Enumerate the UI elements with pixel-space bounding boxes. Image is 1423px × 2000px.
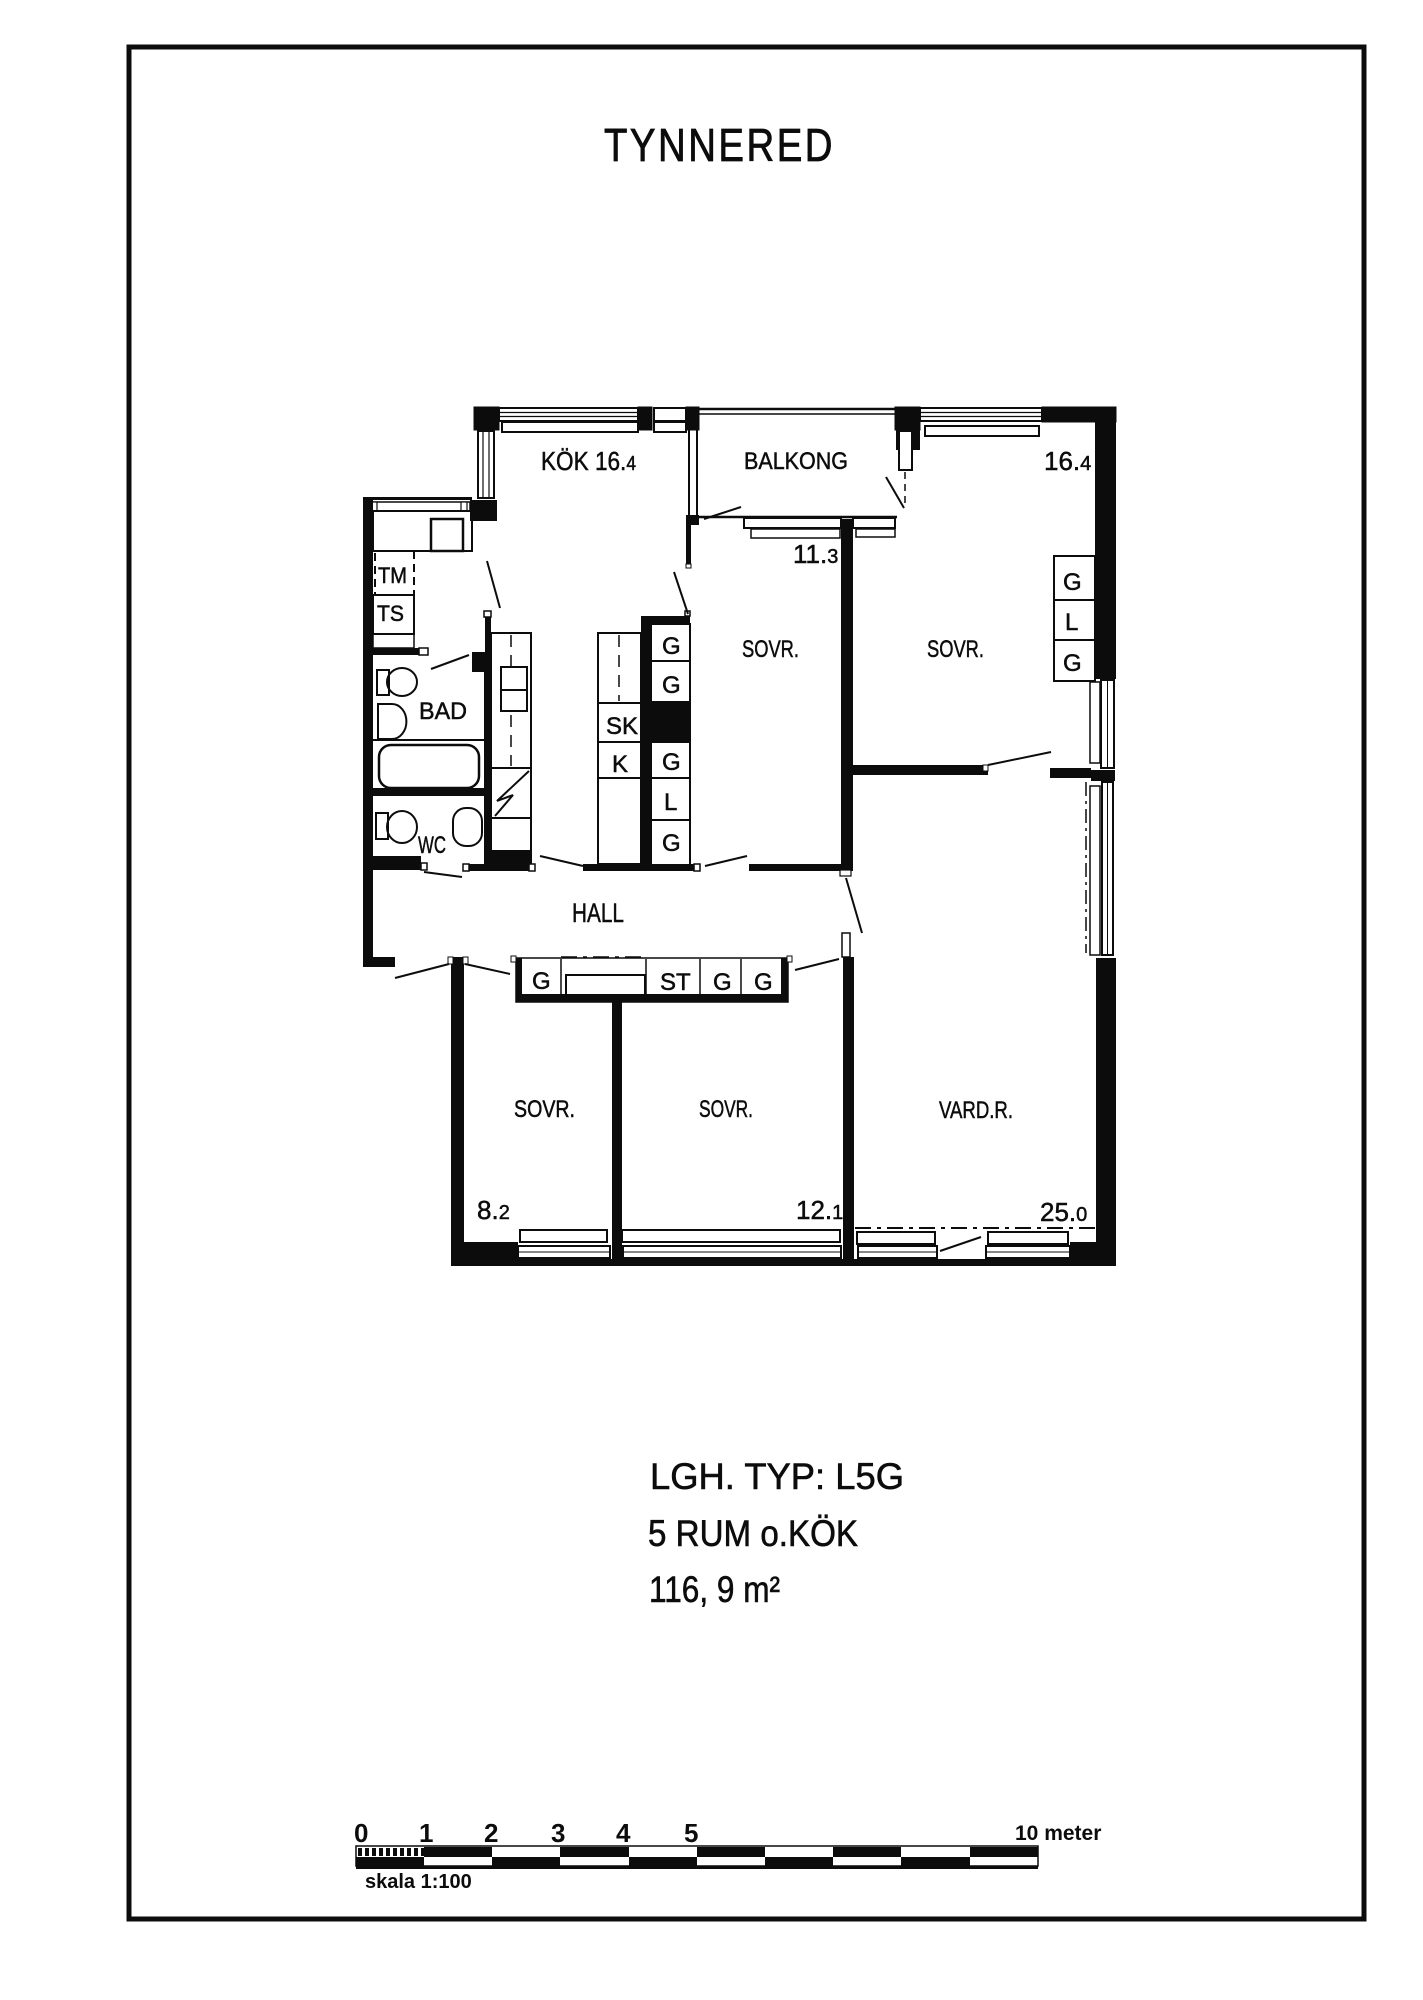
svg-text:TM: TM [378,563,407,588]
svg-text:G: G [662,749,681,776]
svg-text:LGH. TYP: L5G: LGH. TYP: L5G [650,1456,904,1497]
svg-text:10 meter: 10 meter [1015,1822,1101,1845]
svg-text:SOVR.: SOVR. [699,1096,753,1123]
svg-text:G: G [662,672,681,699]
svg-text:SK: SK [606,713,638,740]
svg-text:G: G [1063,650,1082,677]
svg-text:L: L [664,789,677,816]
svg-text:G: G [754,969,773,996]
svg-text:SOVR.: SOVR. [927,636,984,663]
svg-text:WC: WC [418,832,446,859]
svg-text:SOVR.: SOVR. [742,636,799,663]
svg-text:TS: TS [377,601,404,626]
svg-text:G: G [662,830,681,857]
svg-text:G: G [532,968,551,995]
svg-text:G: G [662,633,681,660]
svg-text:HALL: HALL [572,898,624,928]
svg-text:1: 1 [419,1818,433,1848]
svg-text:KÖK 16.4: KÖK 16.4 [541,446,636,476]
svg-text:3: 3 [551,1818,565,1848]
svg-text:SOVR.: SOVR. [514,1096,575,1123]
svg-text:skala 1:100: skala 1:100 [365,1871,472,1893]
svg-text:VARD.R.: VARD.R. [939,1097,1013,1124]
svg-text:2: 2 [484,1818,498,1848]
svg-text:BALKONG: BALKONG [744,448,848,475]
svg-text:BAD: BAD [419,698,467,725]
svg-text:TYNNERED: TYNNERED [604,119,835,171]
svg-text:L: L [1065,609,1078,636]
svg-text:4: 4 [616,1818,631,1848]
svg-text:5 RUM o.KÖK: 5 RUM o.KÖK [648,1513,858,1554]
svg-text:K: K [612,751,628,778]
svg-text:5: 5 [684,1818,698,1848]
svg-text:G: G [713,969,732,996]
svg-text:G: G [1063,569,1082,596]
svg-text:0: 0 [354,1818,368,1848]
svg-text:ST: ST [660,969,691,996]
svg-text:116, 9 m²: 116, 9 m² [649,1569,780,1610]
